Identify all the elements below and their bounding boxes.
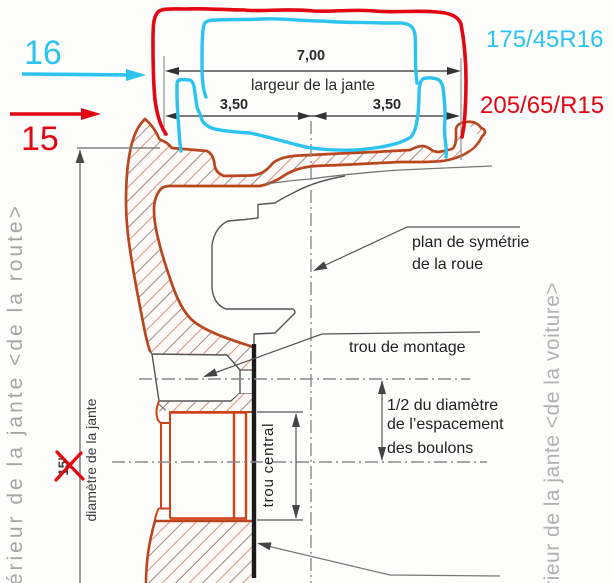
svg-text:plan de symétrie: plan de symétrie [412,234,529,251]
svg-text:205/65/R15: 205/65/R15 [480,92,604,119]
svg-text:trou central: trou central [260,423,277,508]
svg-text:15: 15 [21,120,59,158]
svg-text:3,50: 3,50 [220,97,248,113]
svg-text:des boulons: des boulons [387,440,473,457]
svg-text:térieur de la jante <de la rou: térieur de la jante <de la route> [4,203,27,583]
svg-text:trou de montage: trou de montage [349,339,466,356]
svg-text:16: 16 [24,34,62,72]
svg-text:diamètre de la jante: diamètre de la jante [83,398,99,521]
svg-text:largeur de la jante: largeur de la jante [251,77,375,94]
svg-text:de la roue: de la roue [412,256,483,273]
svg-text:175/45R16: 175/45R16 [486,26,603,53]
svg-text:7,00: 7,00 [297,48,325,64]
svg-text:érieur de la jante <de la voit: érieur de la jante <de la voiture> [541,282,564,583]
svg-text:1/2 du diamètre: 1/2 du diamètre [387,397,498,414]
svg-text:de l’espacement: de l’espacement [387,416,504,433]
svg-text:3,50: 3,50 [373,97,401,113]
